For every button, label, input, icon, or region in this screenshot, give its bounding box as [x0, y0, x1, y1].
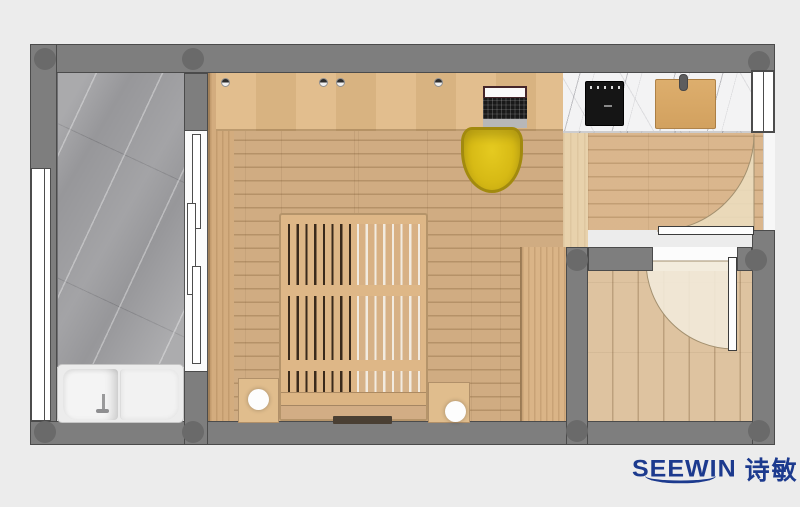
wall-joint: [34, 48, 56, 70]
wall-joint: [34, 421, 56, 443]
cooktop: [585, 81, 624, 126]
bed-crossbar: [288, 360, 422, 371]
wall-bottom: [30, 421, 775, 445]
wall-second-room-left: [566, 247, 588, 445]
wall-knob-icon: [319, 78, 328, 87]
brand-wordmark: SEEWIN: [632, 455, 737, 483]
wall-joint: [566, 249, 588, 271]
entry-door-swing-arc: [657, 134, 754, 231]
cooktop-controls: [590, 86, 620, 89]
second-room-door-leaf: [728, 257, 737, 351]
laptop: [483, 86, 527, 128]
entry-door-leaf: [658, 226, 754, 235]
wall-top: [30, 44, 775, 73]
brand-logo: SEEWIN 诗敏: [632, 451, 799, 487]
laptop-screen: [483, 86, 527, 98]
wall-joint: [182, 48, 204, 70]
entry-door-frame: [751, 70, 775, 133]
floorplan-canvas: SEEWIN 诗敏: [0, 0, 800, 507]
cooktop-mark: [604, 105, 612, 107]
floor-threshold: [333, 416, 392, 424]
platform-bed: [279, 213, 428, 421]
window-mullion: [44, 169, 45, 420]
brand-swoosh-icon: [645, 468, 716, 483]
cutting-board-handle: [679, 74, 688, 91]
bed-slats-right: [357, 224, 421, 397]
wall-knob-icon: [336, 78, 345, 87]
window: [31, 168, 51, 421]
sliding-door-panel: [192, 266, 201, 364]
wall-knob-icon: [434, 78, 443, 87]
second-room-door-swing-arc: [646, 261, 734, 349]
wall-knob-icon: [221, 78, 230, 87]
bed-slats-left: [288, 224, 352, 397]
bed-crossbar: [288, 285, 422, 296]
wall-joint: [748, 420, 770, 442]
bathtub-basin: [63, 369, 118, 420]
brand-name-chinese: 诗敏: [745, 451, 799, 487]
bed-foot-rail: [281, 392, 426, 406]
wall-joint: [566, 420, 588, 442]
table-lamp-left: [248, 389, 269, 410]
partition-stub-top: [184, 73, 208, 131]
laptop-keyboard: [483, 98, 527, 119]
wall-joint: [182, 421, 204, 443]
faucet-handle-icon: [96, 409, 109, 413]
table-lamp-right: [445, 401, 466, 422]
bathtub-deck: [120, 369, 179, 420]
wall-second-room-top: [588, 247, 653, 271]
door-frame-line: [763, 72, 764, 131]
bathtub: [57, 364, 184, 423]
wall-joint: [745, 249, 767, 271]
